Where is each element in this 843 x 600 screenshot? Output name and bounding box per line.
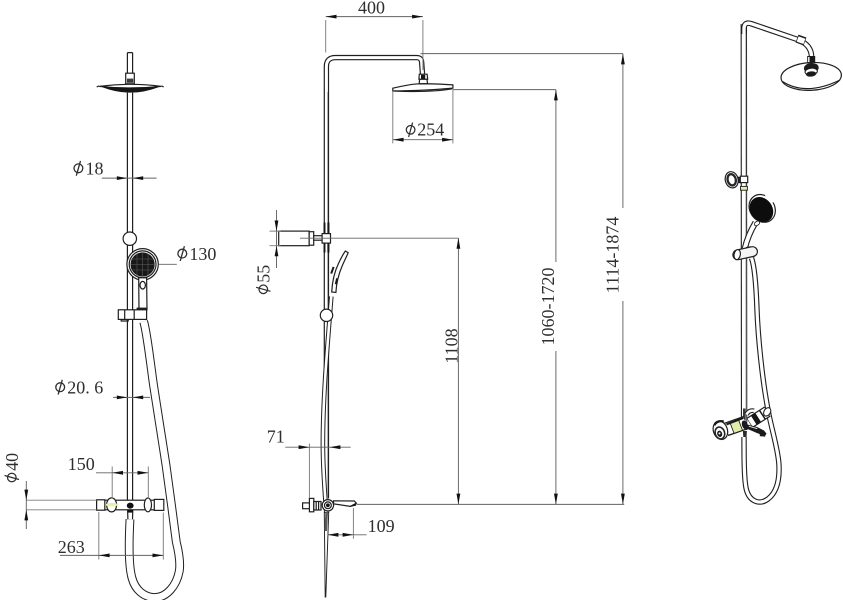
svg-text:20. 6: 20. 6 bbox=[67, 377, 103, 397]
svg-text:400: 400 bbox=[358, 0, 385, 17]
svg-text:1108: 1108 bbox=[442, 328, 462, 363]
svg-text:55: 55 bbox=[253, 265, 273, 283]
svg-text:1060-1720: 1060-1720 bbox=[538, 268, 558, 346]
svg-text:40: 40 bbox=[2, 453, 22, 471]
svg-text:130: 130 bbox=[189, 244, 216, 264]
svg-text:254: 254 bbox=[417, 120, 444, 140]
svg-text:1114-1874: 1114-1874 bbox=[603, 217, 623, 294]
svg-text:18: 18 bbox=[86, 159, 104, 179]
svg-text:150: 150 bbox=[68, 454, 95, 474]
svg-text:71: 71 bbox=[267, 427, 285, 447]
svg-text:263: 263 bbox=[58, 537, 85, 557]
svg-text:109: 109 bbox=[368, 516, 395, 536]
